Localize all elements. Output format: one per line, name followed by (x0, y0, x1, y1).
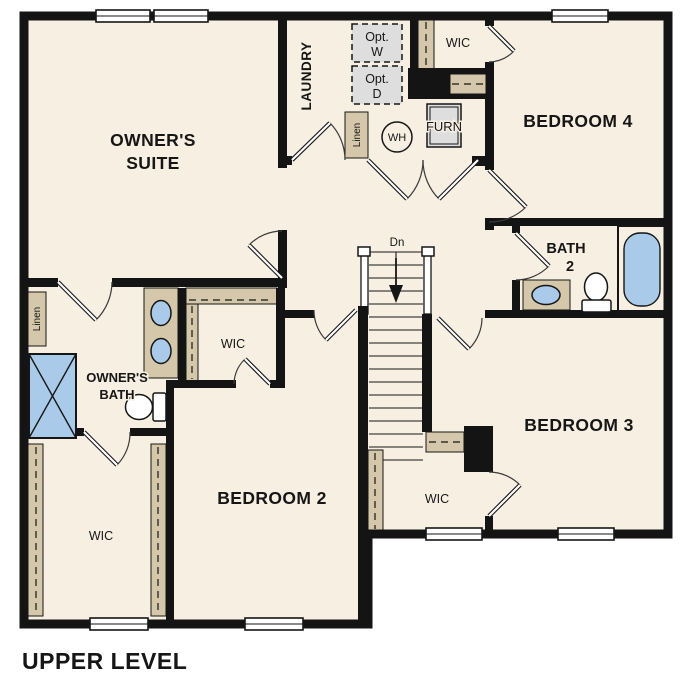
room-label-wic-bedroom3: WIC (425, 492, 449, 506)
bath2-vanity (523, 280, 570, 310)
floor-plan-page: Dn (0, 0, 687, 687)
svg-text:OWNER'S: OWNER'S (110, 130, 196, 150)
upper-level-floor-plan: Dn (0, 0, 687, 687)
svg-text:OWNER'S: OWNER'S (86, 370, 148, 385)
window (96, 10, 150, 22)
linen-closet-hall: Linen (28, 292, 46, 346)
room-label-wic-owners: WIC (221, 337, 245, 351)
optional-dryer: Opt. D (352, 66, 402, 104)
water-heater-label: WH (388, 132, 406, 144)
linen-laundry-label: Linen (352, 123, 363, 147)
linen-closet-laundry: Linen (345, 112, 368, 158)
stair-down-label: Dn (390, 237, 405, 249)
furnace-label: FURN (426, 119, 462, 134)
sink (151, 339, 171, 364)
water-heater: WH (382, 122, 412, 152)
svg-text:2: 2 (566, 259, 574, 275)
window (154, 10, 208, 22)
linen-hall-label: Linen (32, 307, 43, 331)
room-label-wic-lower-left: WIC (89, 529, 113, 543)
svg-text:SUITE: SUITE (126, 153, 180, 173)
window (558, 528, 614, 540)
room-label-wic-bedroom4: WIC (446, 36, 470, 50)
owners-bath-vanity (144, 288, 178, 378)
opt-dryer-line2: D (372, 87, 381, 101)
opt-washer-line2: W (371, 45, 383, 59)
window (245, 618, 303, 630)
chase-shelf (450, 74, 486, 94)
window (552, 10, 608, 22)
window (426, 528, 482, 540)
opt-washer-line1: Opt. (365, 30, 389, 44)
plan-title: UPPER LEVEL (22, 648, 187, 674)
chase-lower (464, 426, 493, 472)
furnace: FURN (426, 104, 462, 147)
room-label-bedroom4: BEDROOM 4 (523, 111, 633, 131)
opt-dryer-line1: Opt. (365, 72, 389, 86)
svg-text:BATH: BATH (99, 387, 134, 402)
sink (532, 286, 560, 305)
svg-text:BATH: BATH (546, 241, 585, 257)
room-label-laundry: LAUNDRY (299, 42, 314, 111)
shower (29, 354, 76, 438)
room-label-bedroom3: BEDROOM 3 (524, 415, 634, 435)
optional-washer: Opt. W (352, 24, 402, 62)
sink (151, 301, 171, 326)
window (90, 618, 148, 630)
room-label-bedroom2: BEDROOM 2 (217, 488, 327, 508)
